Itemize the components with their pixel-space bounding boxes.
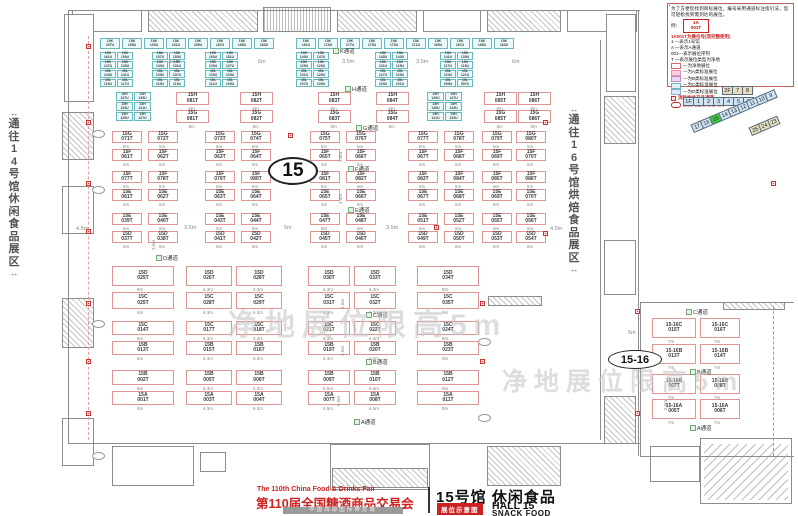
plan-badge: 展位示意图 bbox=[437, 503, 483, 515]
booth-number: 111U bbox=[209, 83, 217, 87]
booth-number: 038T bbox=[157, 237, 168, 242]
booth-number: 067T bbox=[417, 195, 428, 200]
dimension-label: 6m bbox=[321, 202, 327, 207]
dimension-label: 6m bbox=[252, 162, 258, 167]
booth-number: 048T bbox=[355, 219, 366, 224]
legend-intro: 为了方便您找到目标展位，编号采用通道标注指引法，您可轻松找到需到达的展位。 bbox=[671, 6, 790, 18]
booth: 15L113U bbox=[169, 79, 185, 87]
aisle-icon bbox=[156, 255, 162, 261]
title-divider bbox=[428, 487, 430, 513]
aisle-label-text: F通道 bbox=[355, 165, 369, 173]
booth: 15D053T bbox=[482, 231, 512, 243]
booth-number: 187U bbox=[216, 44, 224, 48]
booth: 15K185U bbox=[232, 38, 252, 49]
aisle-label-text: E通道 bbox=[355, 206, 370, 214]
booth: 15H083T bbox=[318, 92, 351, 105]
booth: 15K191U bbox=[166, 38, 186, 49]
booth-number: 062T bbox=[157, 155, 168, 160]
booth: 15H131U bbox=[134, 102, 151, 111]
booth: 15L133U bbox=[222, 70, 238, 78]
booth-number: 051T bbox=[417, 219, 428, 224]
booth: 15E068T bbox=[444, 189, 474, 201]
booth: 15D033T bbox=[354, 266, 396, 286]
dimension-label: 8m bbox=[497, 124, 503, 129]
booth-number: 173U bbox=[390, 44, 398, 48]
dimension-label: 7m bbox=[668, 420, 674, 425]
fire-lane-dashed-line bbox=[88, 36, 89, 440]
aisle-label-text: A通道 bbox=[697, 424, 712, 432]
aisle-label: A通道 bbox=[354, 418, 376, 426]
dimension-label: 6m bbox=[321, 244, 327, 249]
dimension-label: 6m bbox=[419, 162, 425, 167]
fire-hydrant-icon bbox=[86, 44, 91, 49]
booth: 15K187U bbox=[210, 38, 230, 49]
booth: 15D049T bbox=[408, 231, 438, 243]
dimension-label: 6m bbox=[527, 162, 533, 167]
booth: 15K137U bbox=[100, 61, 116, 69]
booth-number: 066T bbox=[355, 195, 366, 200]
corridor-left-text: 通往14号馆休闲食品展区 bbox=[6, 118, 22, 268]
booth: 15L099U bbox=[440, 79, 456, 87]
booth: 15D025T bbox=[112, 266, 174, 286]
wall-line bbox=[68, 443, 640, 444]
booth: 15F083T bbox=[408, 171, 438, 183]
booth-number: 175U bbox=[368, 44, 376, 48]
aisle-label: A通道 bbox=[690, 424, 712, 432]
booth-number: 107U bbox=[300, 83, 308, 87]
booth: 15L127U bbox=[375, 70, 391, 78]
booth: 15D041T bbox=[205, 231, 235, 243]
booth: 15D034T bbox=[417, 266, 479, 286]
example-line2: 001T bbox=[691, 25, 701, 30]
minimap-floor2: 2F78 bbox=[722, 86, 752, 95]
aisle-label: G通道 bbox=[356, 124, 378, 132]
booth: 15B009T bbox=[308, 370, 350, 385]
booth: 15E067T bbox=[408, 189, 438, 201]
booth-number: 072T bbox=[157, 137, 168, 142]
dimension-label: 8m bbox=[189, 124, 195, 129]
booth-number: 119U bbox=[104, 83, 112, 87]
booth: 15E063T bbox=[205, 189, 235, 201]
dimension-label: 6.3m bbox=[253, 406, 263, 411]
booth: 15D045T bbox=[310, 231, 340, 243]
booth: 15F068T bbox=[444, 149, 474, 161]
booth: 15E062T bbox=[148, 189, 178, 201]
booth-number: 115U bbox=[156, 83, 164, 87]
booth-number: 080T bbox=[250, 177, 261, 182]
fire-hydrant-icon bbox=[288, 133, 293, 138]
booth-number: 064T bbox=[250, 195, 261, 200]
dimension-label: 6m bbox=[419, 244, 425, 249]
booth: 15L135U bbox=[205, 70, 221, 78]
booth: 15E051T bbox=[408, 213, 438, 225]
booth: 15F080T bbox=[241, 171, 271, 183]
booth: 15G075T bbox=[310, 131, 340, 143]
booth-number: 171U bbox=[412, 44, 420, 48]
booth-number: 061T bbox=[121, 155, 132, 160]
corridor-char: 品 bbox=[566, 227, 582, 240]
booth: 15E065T bbox=[310, 189, 340, 201]
booth: 15F070T bbox=[516, 149, 546, 161]
booth-number: 007T bbox=[323, 398, 334, 403]
aisle-icon bbox=[690, 425, 696, 431]
booth-number: 101U bbox=[396, 83, 404, 87]
structural-column bbox=[92, 130, 105, 138]
booth-number: 195U bbox=[128, 44, 136, 48]
booth: 15L141U bbox=[117, 70, 133, 78]
booth-number: 015T bbox=[203, 348, 214, 353]
fire-hydrant-icon bbox=[86, 229, 91, 234]
booth-number: 083T bbox=[417, 177, 428, 182]
booth-number: 135U bbox=[138, 97, 146, 101]
dimension-label: 6m bbox=[216, 162, 222, 167]
booth-number: 067T bbox=[417, 155, 428, 160]
booth-number: 054T bbox=[525, 237, 536, 242]
dimension-label: 3.5m bbox=[416, 59, 428, 65]
booth-number: 080T bbox=[525, 137, 536, 142]
booth-number: 049T bbox=[417, 237, 428, 242]
hall-section-oval: 15-16 bbox=[608, 350, 662, 369]
dimension-label: 6.3m bbox=[203, 310, 213, 315]
booth-number: 109U bbox=[226, 83, 234, 87]
watermark-height-limit: 净地展位限高5m bbox=[228, 300, 507, 344]
dimension-label: 3.5m bbox=[340, 346, 345, 356]
booth: 15H145U bbox=[427, 102, 444, 111]
corridor-char: 展 bbox=[6, 243, 22, 256]
booth: 15H147U bbox=[445, 92, 462, 101]
booth: 15L097U bbox=[457, 79, 473, 87]
booth: 15H129U bbox=[116, 112, 133, 121]
booth: 15K171U bbox=[406, 38, 426, 49]
aisle-label: C通道 bbox=[686, 308, 708, 316]
booth-number: 084T bbox=[387, 117, 398, 122]
booth: 15K175U bbox=[362, 38, 382, 49]
dimension-label: 8m bbox=[531, 124, 537, 129]
booth: 15F084T bbox=[444, 171, 474, 183]
booth-number: 053T bbox=[491, 237, 502, 242]
dimension-label: 3.5m bbox=[338, 194, 343, 204]
booth: 15E048T bbox=[346, 213, 376, 225]
booth: 15L109U bbox=[222, 79, 238, 87]
dimension-label: 6m bbox=[527, 244, 533, 249]
dimension-label: 6m bbox=[216, 202, 222, 207]
booth: 15D028T bbox=[236, 266, 282, 286]
booth-number: 103U bbox=[379, 83, 387, 87]
booth-number: 063T bbox=[214, 155, 225, 160]
booth-number: 068T bbox=[453, 155, 464, 160]
dimension-label: 6m bbox=[419, 202, 425, 207]
aisle-label-text: G通道 bbox=[363, 124, 378, 132]
booth: 15L119U bbox=[100, 79, 116, 87]
dimension-label: 6.3m bbox=[203, 406, 213, 411]
booth-number: 077T bbox=[417, 137, 428, 142]
booth-number: 097U bbox=[461, 83, 469, 87]
booth: 15D042T bbox=[241, 231, 271, 243]
booth: 15F065T bbox=[310, 149, 340, 161]
booth-number: 141U bbox=[431, 117, 439, 121]
booth-number: 052T bbox=[453, 219, 464, 224]
booth-number: 085T bbox=[495, 99, 506, 104]
corridor-char: 6 bbox=[566, 152, 582, 165]
arrow-icon: ↔ bbox=[6, 268, 22, 278]
booth: 15F062T bbox=[148, 149, 178, 161]
booth: 15L107U bbox=[296, 79, 312, 87]
building-structure bbox=[423, 10, 481, 32]
booth-number: 085T bbox=[491, 177, 502, 182]
booth: 15B002T bbox=[112, 370, 174, 385]
booth: 15D046T bbox=[346, 231, 376, 243]
hall-number-oval: 15 bbox=[268, 157, 318, 185]
wall-line bbox=[640, 302, 794, 303]
booth-number: 041T bbox=[214, 237, 225, 242]
booth: 15E040T bbox=[148, 213, 178, 225]
dimension-label: 6m bbox=[159, 162, 165, 167]
corridor-char: 食 bbox=[6, 218, 22, 231]
booth-number: 004T bbox=[253, 398, 264, 403]
booth: 15K167U bbox=[450, 38, 470, 49]
corridor-char: 号 bbox=[566, 164, 582, 177]
booth: 15L103U bbox=[375, 79, 391, 87]
booth-number: 086T bbox=[525, 177, 536, 182]
booth-number: 006T bbox=[253, 378, 264, 383]
booth-number: 082T bbox=[355, 177, 366, 182]
dimension-label: 5m bbox=[628, 330, 636, 336]
booth-number: 047T bbox=[319, 219, 330, 224]
booth-number: 037T bbox=[121, 237, 132, 242]
aisle-label-text: A通道 bbox=[361, 418, 376, 426]
dimension-label: 6m bbox=[252, 244, 258, 249]
booth: 15H086T bbox=[518, 92, 551, 105]
booth: 15D054T bbox=[516, 231, 546, 243]
booth: 15-16A005T bbox=[652, 399, 696, 419]
booth: 15-16A006T bbox=[700, 399, 740, 419]
booth: 15L121U bbox=[457, 70, 473, 78]
booth: 15A004T bbox=[236, 391, 282, 405]
booth: 15K159U bbox=[117, 52, 133, 60]
booth-number: 075T bbox=[319, 137, 330, 142]
booth: 15F064T bbox=[241, 149, 271, 161]
dimension-label: 8m bbox=[137, 310, 143, 315]
fire-hydrant-icon bbox=[543, 120, 548, 125]
aisle-label: F通道 bbox=[348, 165, 369, 173]
booth: 15K129U bbox=[205, 61, 221, 69]
booth: 15E061T bbox=[112, 189, 142, 201]
dimension-label: 6m bbox=[159, 202, 165, 207]
booth-number: 002T bbox=[137, 378, 148, 383]
booth-number: 013T bbox=[668, 354, 679, 359]
dimension-label: 6m bbox=[493, 244, 499, 249]
building-structure bbox=[62, 418, 94, 466]
structural-column bbox=[92, 320, 105, 328]
dimension-label: 6.3m bbox=[323, 356, 333, 361]
booth: 15K133U bbox=[152, 61, 168, 69]
booth-number: 016T bbox=[714, 328, 725, 333]
dimension-label: 6.5m bbox=[369, 406, 379, 411]
building-structure bbox=[604, 396, 636, 444]
booth-number: 017T bbox=[203, 328, 214, 333]
dimension-label: 6m bbox=[123, 202, 129, 207]
booth-number: 028T bbox=[203, 301, 214, 306]
booth-number: 065T bbox=[319, 155, 330, 160]
booth-number: 165U bbox=[478, 44, 486, 48]
booth: 15D050T bbox=[444, 231, 474, 243]
dimension-label: 6m bbox=[455, 244, 461, 249]
booth-number: 179U bbox=[324, 44, 332, 48]
booth: 15H081T bbox=[176, 92, 209, 105]
booth-number: 028T bbox=[253, 276, 264, 281]
aisle-icon bbox=[345, 86, 351, 92]
corridor-char: 4 bbox=[6, 156, 22, 169]
booth-number: 013T bbox=[137, 348, 148, 353]
building-structure bbox=[337, 10, 417, 32]
booth: 15K127U bbox=[222, 61, 238, 69]
building-structure bbox=[723, 302, 785, 310]
booth-number: 070T bbox=[525, 195, 536, 200]
dimension-label: 6m bbox=[284, 225, 292, 231]
floorplan-canvas: 15K197U15K195U15K193U15K191U15K189U15K18… bbox=[0, 0, 798, 516]
booth-number: 005T bbox=[203, 378, 214, 383]
minimap-hall-cell: 8 bbox=[742, 86, 753, 95]
booth: 15K123U bbox=[313, 61, 329, 69]
booth: 15F061T bbox=[112, 149, 142, 161]
corridor-right: ↔ 通往16号馆烘焙食品展区 ↔ bbox=[566, 104, 582, 274]
pillar-icon bbox=[671, 102, 681, 108]
booth-number: 056T bbox=[525, 219, 536, 224]
booth: 15G073T bbox=[205, 131, 235, 143]
corridor-char: 区 bbox=[6, 256, 22, 269]
booth-number: 073T bbox=[214, 137, 225, 142]
aisle-label-text: C通道 bbox=[693, 308, 708, 316]
booth-number: 163U bbox=[500, 44, 508, 48]
booth-number: 044T bbox=[250, 219, 261, 224]
booth-number: 065T bbox=[319, 195, 330, 200]
booth: 15H127U bbox=[134, 112, 151, 121]
booth-number: 083T bbox=[329, 117, 340, 122]
booth-number: 063T bbox=[214, 195, 225, 200]
building-structure bbox=[112, 446, 194, 486]
booth-number: 197U bbox=[106, 44, 114, 48]
dimension-label: 4.5m bbox=[550, 226, 562, 232]
dimension-label: 6m bbox=[252, 202, 258, 207]
booth-number: 020T bbox=[369, 348, 380, 353]
aisle-label: B通道 bbox=[366, 358, 388, 366]
booth-number: 071T bbox=[121, 137, 132, 142]
booth-number: 193U bbox=[150, 44, 158, 48]
booth-number: 064T bbox=[250, 155, 261, 160]
booth-number: 127U bbox=[138, 117, 146, 121]
aisle-label: D通道 bbox=[156, 254, 178, 262]
aisle-label: K通道 bbox=[333, 47, 355, 55]
booth-number: 084T bbox=[387, 99, 398, 104]
booth: 15H082T bbox=[240, 92, 273, 105]
booth: 15H133U bbox=[116, 102, 133, 111]
booth: 15G071T bbox=[112, 131, 142, 143]
booth-number: 084T bbox=[453, 177, 464, 182]
booth: 15L125U bbox=[392, 70, 408, 78]
booth: 15L139U bbox=[152, 70, 168, 78]
booth: 15A011T bbox=[417, 391, 479, 405]
booth-number: 143U bbox=[449, 107, 457, 111]
booth-number: 189U bbox=[194, 44, 202, 48]
booth-number: 055T bbox=[491, 219, 502, 224]
booth: 15G084T bbox=[376, 110, 409, 123]
dimension-label: 6m bbox=[512, 59, 520, 65]
dimension-label: 6m bbox=[357, 244, 363, 249]
structural-column bbox=[478, 414, 491, 422]
booth: 15F063T bbox=[205, 149, 235, 161]
fair-name-en: The 110th China Food & Drinks Fair bbox=[257, 486, 375, 493]
legend-example-booth: 1A 001T bbox=[683, 19, 709, 33]
booth: 15K161U bbox=[100, 52, 116, 60]
dimension-label: 8m bbox=[253, 124, 259, 129]
booth: 15-16C015T bbox=[652, 318, 696, 338]
booth: 15H084T bbox=[376, 92, 409, 105]
booth: 15L137U bbox=[169, 70, 185, 78]
booth: 15A001T bbox=[112, 391, 174, 405]
aisle-icon bbox=[356, 125, 362, 131]
booth: 15E070T bbox=[516, 189, 546, 201]
dimension-label: 3.5m bbox=[386, 225, 398, 231]
corridor-char: 食 bbox=[566, 214, 582, 227]
booth-number: 070T bbox=[525, 155, 536, 160]
arrow-icon: ↔ bbox=[566, 264, 582, 274]
booth: 15K121U bbox=[375, 61, 391, 69]
booth: 15F066T bbox=[346, 149, 376, 161]
booth-number: 006T bbox=[714, 409, 725, 414]
wall-line bbox=[68, 10, 640, 11]
booth-number: 183U bbox=[260, 44, 268, 48]
booth-number: 133U bbox=[120, 107, 128, 111]
corridor-char: 焙 bbox=[566, 202, 582, 215]
booth-number: 025T bbox=[137, 301, 148, 306]
dimension-label: 3.5m bbox=[184, 225, 196, 231]
building-structure bbox=[604, 96, 636, 144]
booth: 15K115U bbox=[457, 61, 473, 69]
booth-number: 023T bbox=[442, 348, 453, 353]
dimension-label: 6m bbox=[493, 202, 499, 207]
booth: 15F079T bbox=[205, 171, 235, 183]
booth-number: 169U bbox=[434, 44, 442, 48]
booth-number: 068T bbox=[453, 195, 464, 200]
booth: 15D030T bbox=[308, 266, 350, 286]
booth: 15C025T bbox=[112, 292, 174, 309]
building-structure bbox=[604, 240, 636, 295]
booth: 15G081T bbox=[176, 110, 209, 123]
booth: 15-16B014T bbox=[700, 344, 740, 364]
dimension-label: 6m bbox=[527, 202, 533, 207]
booth-number: 025T bbox=[137, 276, 148, 281]
booth: 15K135U bbox=[117, 61, 133, 69]
building-structure bbox=[487, 446, 561, 486]
booth-number: 105U bbox=[317, 83, 325, 87]
booth-number: 085T bbox=[495, 117, 506, 122]
corridor-char: 馆 bbox=[566, 177, 582, 190]
dimension-label: 6.3m bbox=[253, 356, 263, 361]
booth: 15F077T bbox=[112, 171, 142, 183]
arrow-icon: ↔ bbox=[566, 104, 582, 114]
corridor-char: 1 bbox=[6, 143, 22, 156]
legend-box: 为了方便您找到目标展位，编号采用通道标注指引法，您可轻松找到需到达的展位。 例：… bbox=[667, 3, 794, 87]
arrow-icon: ↔ bbox=[6, 108, 22, 118]
dimension-label: 6m bbox=[455, 202, 461, 207]
dimension-label: 8m bbox=[137, 406, 143, 411]
booth-number: 042T bbox=[250, 237, 261, 242]
booth-number: 191U bbox=[172, 44, 180, 48]
booth: 15L111U bbox=[205, 79, 221, 87]
category-swatch-icon bbox=[671, 63, 681, 69]
booth-number: 081T bbox=[319, 177, 330, 182]
dimension-label: 6m bbox=[159, 244, 165, 249]
